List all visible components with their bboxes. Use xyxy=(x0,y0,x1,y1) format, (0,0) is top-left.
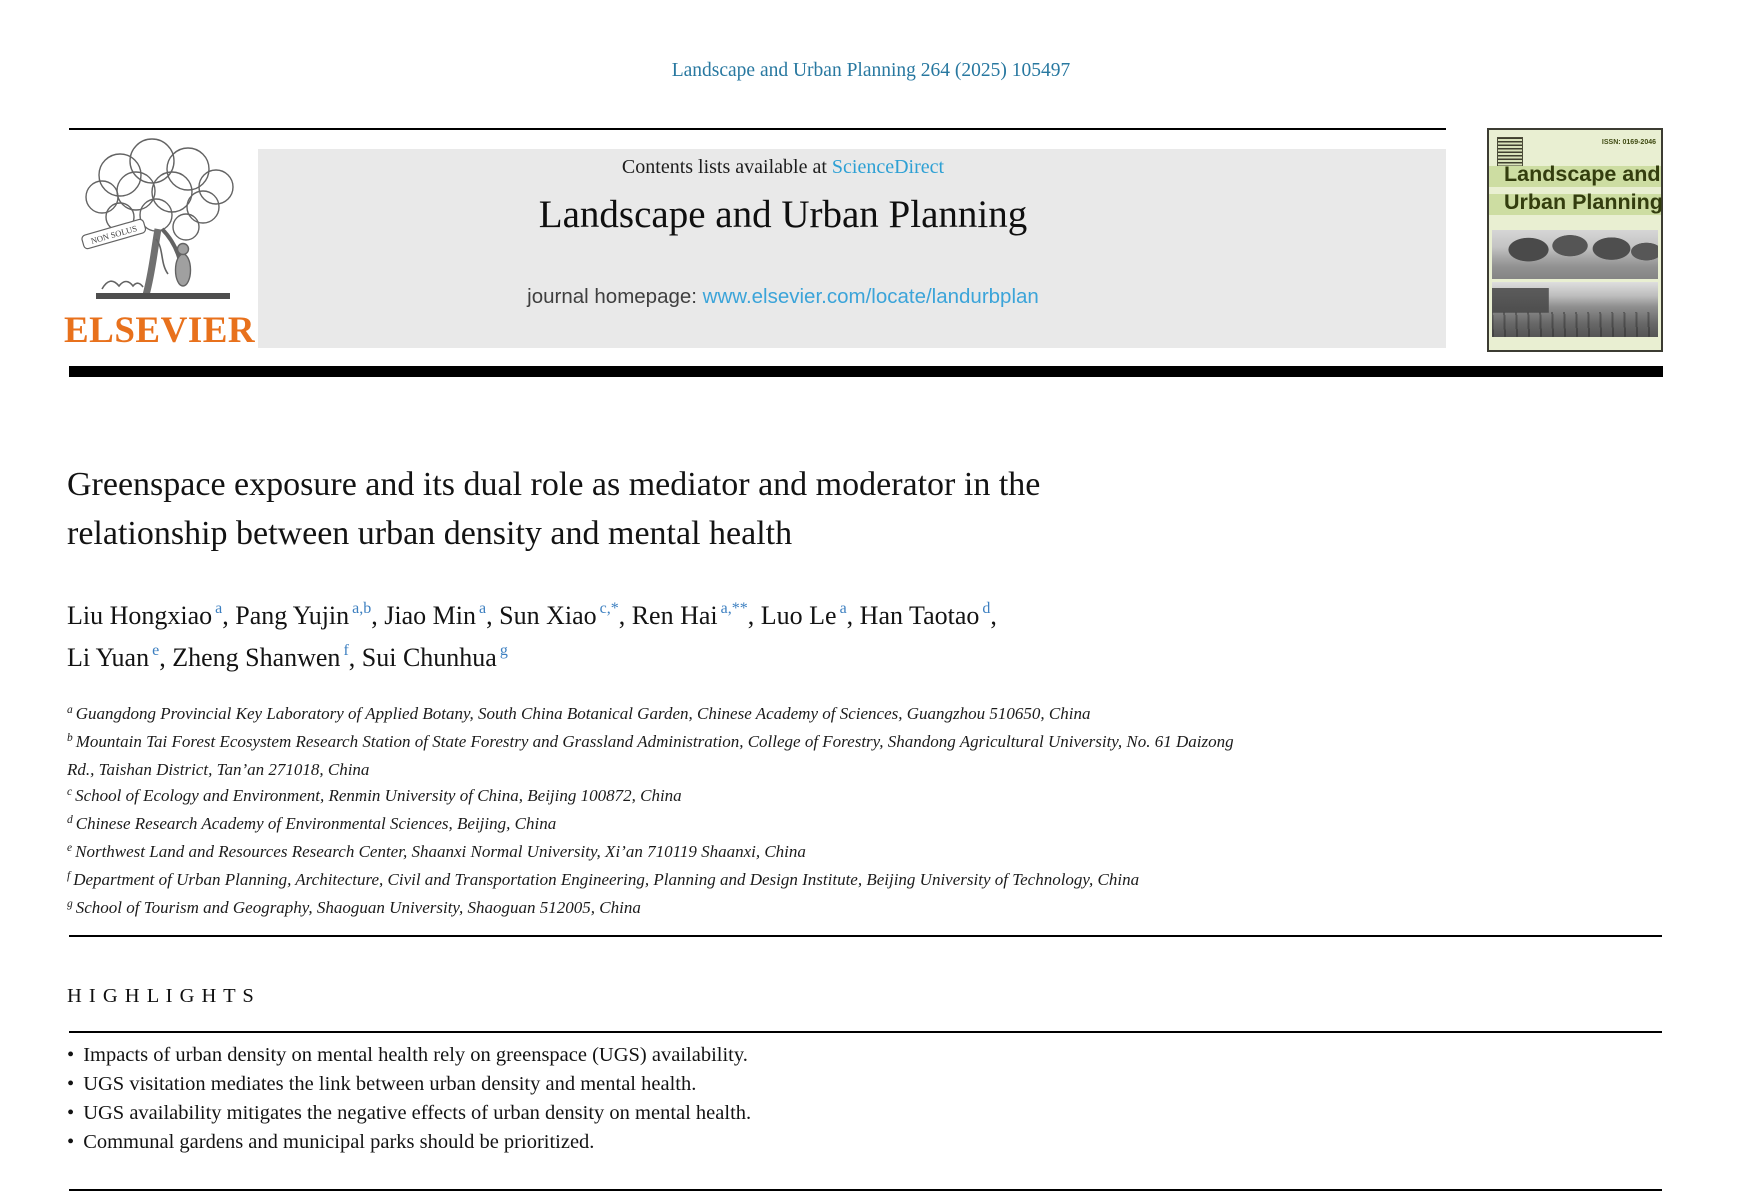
authors-line-2: Li Yuane, Zheng Shanwenf, Sui Chunhuag xyxy=(67,639,997,681)
page-bottom-rule xyxy=(69,1189,1662,1191)
homepage-line: journal homepage: www.elsevier.com/locat… xyxy=(258,285,1308,309)
cover-title-band-1: Landscape and xyxy=(1489,166,1661,187)
elsevier-wordmark: ELSEVIER xyxy=(64,309,255,352)
author-name: Pang Yujina,b, xyxy=(235,601,384,630)
journal-header-inner: Contents lists available at ScienceDirec… xyxy=(258,149,1308,348)
article-title-line-2: relationship between urban density and m… xyxy=(67,509,1040,558)
journal-cover-thumbnail[interactable]: ISSN: 0169-2046 Landscape and Urban Plan… xyxy=(1487,128,1663,352)
cover-photo-railway xyxy=(1492,282,1658,337)
author-name: Sui Chunhuag xyxy=(362,643,508,672)
affiliation-label: d xyxy=(67,814,73,826)
affiliation-line: fDepartment of Urban Planning, Architect… xyxy=(67,867,1234,895)
cover-issn: ISSN: 0169-2046 xyxy=(1602,139,1656,146)
authors-line-1: Liu Hongxiaoa, Pang Yujina,b, Jiao Mina,… xyxy=(67,597,997,639)
journal-header-box: Contents lists available at ScienceDirec… xyxy=(258,149,1446,348)
author-affiliation-superscript: d xyxy=(982,600,990,617)
highlights-heading: H I G H L I G H T S xyxy=(67,985,255,1008)
author-name: Jiao Mina, xyxy=(384,601,499,630)
elsevier-tree-icon: NON SOLUS xyxy=(62,137,258,307)
affiliation-label: f xyxy=(67,870,70,882)
author-affiliation-superscript: a,b xyxy=(352,600,371,617)
bullet-icon: • xyxy=(67,1102,74,1124)
highlight-item: •UGS availability mitigates the negative… xyxy=(67,1099,751,1128)
affiliation-line: aGuangdong Provincial Key Laboratory of … xyxy=(67,701,1234,729)
affiliation-label: g xyxy=(67,898,73,910)
article-title: Greenspace exposure and its dual role as… xyxy=(67,460,1040,558)
author-name: Ren Haia,**, xyxy=(632,601,761,630)
highlight-item: •UGS visitation mediates the link betwee… xyxy=(67,1070,751,1099)
homepage-url-link[interactable]: www.elsevier.com/locate/landurbplan xyxy=(703,285,1039,308)
affiliation-line: gSchool of Tourism and Geography, Shaogu… xyxy=(67,895,1234,923)
highlights-list: •Impacts of urban density on mental heal… xyxy=(67,1041,751,1157)
author-affiliation-superscript: a xyxy=(479,600,486,617)
author-name: Han Taotaod, xyxy=(860,601,997,630)
author-affiliation-superscript: a,** xyxy=(721,600,748,617)
bullet-icon: • xyxy=(67,1073,74,1095)
header-top-rule xyxy=(69,128,1446,130)
contents-line: Contents lists available at ScienceDirec… xyxy=(258,156,1308,179)
bullet-icon: • xyxy=(67,1131,74,1153)
bullet-icon: • xyxy=(67,1044,74,1066)
affiliation-label: a xyxy=(67,704,73,716)
cover-title-band-2: Urban Planning xyxy=(1489,194,1661,215)
affiliation-list: aGuangdong Provincial Key Laboratory of … xyxy=(67,701,1234,923)
author-name: Zheng Shanwenf, xyxy=(172,643,362,672)
sciencedirect-link[interactable]: ScienceDirect xyxy=(832,156,944,178)
homepage-label: journal homepage: xyxy=(527,285,703,308)
contents-prefix-text: Contents lists available at xyxy=(622,156,832,178)
author-affiliation-superscript: g xyxy=(500,642,508,659)
journal-citation-link[interactable]: Landscape and Urban Planning 264 (2025) … xyxy=(0,60,1742,82)
cover-title-line-1: Landscape and xyxy=(1504,162,1661,187)
elsevier-logo: NON SOLUS ELSEVIER xyxy=(62,137,258,349)
highlight-item: •Communal gardens and municipal parks sh… xyxy=(67,1128,751,1157)
affiliation-line: bMountain Tai Forest Ecosystem Research … xyxy=(67,729,1234,757)
affiliation-line: eNorthwest Land and Resources Research C… xyxy=(67,839,1234,867)
affiliation-label: c xyxy=(67,786,72,798)
highlights-top-rule xyxy=(69,935,1662,937)
affiliation-label: e xyxy=(67,842,72,854)
header-bottom-rule xyxy=(69,366,1663,377)
paper-first-page: Landscape and Urban Planning 264 (2025) … xyxy=(0,0,1742,1204)
cover-photo-trees xyxy=(1492,230,1658,279)
affiliation-label: b xyxy=(67,732,73,744)
author-affiliation-superscript: f xyxy=(343,642,348,659)
author-name: Liu Hongxiaoa, xyxy=(67,601,235,630)
affiliation-line: Rd., Taishan District, Tan’an 271018, Ch… xyxy=(67,757,1234,783)
highlight-item: •Impacts of urban density on mental heal… xyxy=(67,1041,751,1070)
author-name: Luo Lea, xyxy=(761,601,860,630)
affiliation-line: cSchool of Ecology and Environment, Renm… xyxy=(67,783,1234,811)
journal-title: Landscape and Urban Planning xyxy=(258,192,1308,237)
author-affiliation-superscript: e xyxy=(152,642,159,659)
cover-title-line-2: Urban Planning xyxy=(1504,190,1663,215)
article-title-line-1: Greenspace exposure and its dual role as… xyxy=(67,460,1040,509)
highlights-heading-rule xyxy=(69,1031,1662,1033)
author-affiliation-superscript: a xyxy=(215,600,222,617)
author-affiliation-superscript: a xyxy=(840,600,847,617)
author-name: Li Yuane, xyxy=(67,643,172,672)
author-name: Sun Xiaoc,*, xyxy=(499,601,632,630)
affiliation-line: dChinese Research Academy of Environment… xyxy=(67,811,1234,839)
author-list: Liu Hongxiaoa, Pang Yujina,b, Jiao Mina,… xyxy=(67,597,997,681)
author-affiliation-superscript: c,* xyxy=(600,600,619,617)
